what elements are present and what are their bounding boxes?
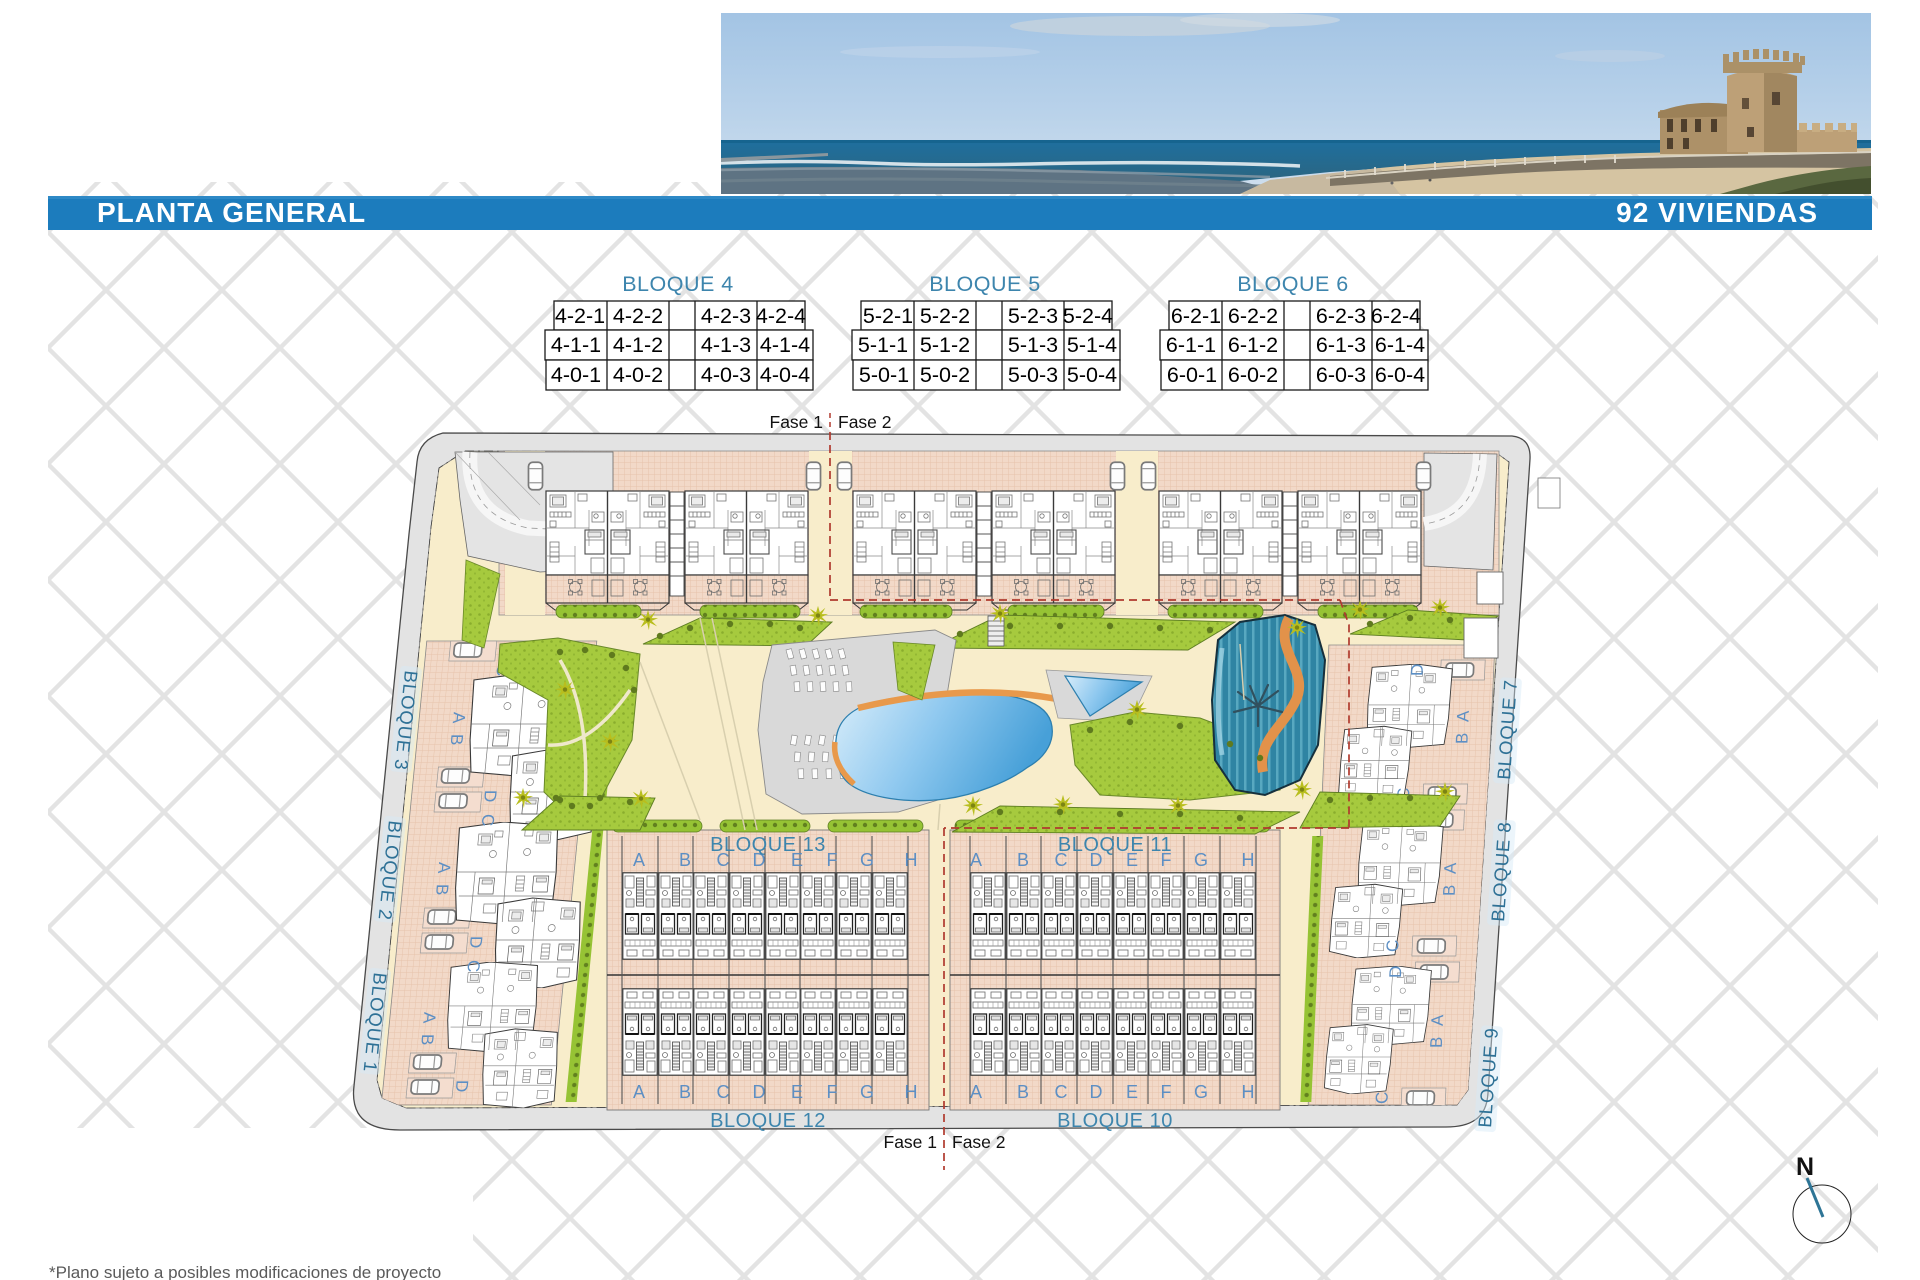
svg-text:4-1-2: 4-1-2 — [613, 333, 663, 357]
svg-text:A: A — [449, 712, 469, 724]
svg-text:BLOQUE 4: BLOQUE 4 — [622, 272, 734, 296]
svg-text:6-0-2: 6-0-2 — [1228, 363, 1278, 387]
svg-text:F: F — [827, 850, 838, 870]
svg-text:D: D — [480, 790, 500, 802]
svg-text:BLOQUE 6: BLOQUE 6 — [1237, 272, 1349, 296]
svg-text:6-0-3: 6-0-3 — [1316, 363, 1366, 387]
svg-text:N: N — [1796, 1153, 1814, 1181]
svg-text:B: B — [1017, 850, 1029, 870]
svg-text:C: C — [463, 960, 483, 972]
svg-text:6-0-4: 6-0-4 — [1375, 363, 1425, 387]
svg-text:D: D — [1090, 1082, 1103, 1102]
svg-text:5-1-1: 5-1-1 — [858, 333, 908, 357]
svg-text:6-2-2: 6-2-2 — [1228, 304, 1278, 328]
svg-text:6-0-1: 6-0-1 — [1167, 363, 1217, 387]
svg-text:C: C — [717, 1082, 730, 1102]
svg-text:BLOQUE 11: BLOQUE 11 — [1058, 834, 1172, 856]
svg-text:4-2-3: 4-2-3 — [701, 304, 751, 328]
svg-text:D: D — [1386, 966, 1406, 978]
svg-text:A: A — [434, 862, 454, 874]
svg-text:C: C — [1055, 1082, 1068, 1102]
svg-text:5-1-2: 5-1-2 — [920, 333, 970, 357]
svg-text:6-1-3: 6-1-3 — [1316, 333, 1366, 357]
svg-text:PLANTA GENERAL: PLANTA GENERAL — [97, 197, 366, 228]
svg-text:A: A — [1428, 1014, 1448, 1026]
svg-text:E: E — [791, 1082, 803, 1102]
svg-text:D: D — [452, 1080, 472, 1092]
svg-text:BLOQUE 12: BLOQUE 12 — [710, 1110, 826, 1132]
svg-text:B: B — [679, 1082, 691, 1102]
svg-text:B: B — [447, 734, 467, 745]
svg-text:D: D — [1407, 664, 1427, 676]
svg-text:B: B — [1452, 733, 1472, 744]
svg-text:D: D — [753, 1082, 766, 1102]
svg-text:6-2-3: 6-2-3 — [1316, 304, 1366, 328]
svg-text:4-1-3: 4-1-3 — [701, 333, 751, 357]
svg-text:Fase 1: Fase 1 — [770, 412, 824, 432]
svg-text:5-2-1: 5-2-1 — [863, 304, 913, 328]
svg-text:G: G — [1194, 850, 1208, 870]
svg-text:H: H — [1242, 1082, 1255, 1102]
svg-text:4-2-1: 4-2-1 — [555, 304, 605, 328]
svg-text:5-0-3: 5-0-3 — [1008, 363, 1058, 387]
svg-text:4-0-3: 4-0-3 — [701, 363, 751, 387]
svg-text:5-1-4: 5-1-4 — [1067, 333, 1117, 357]
svg-text:B: B — [1440, 885, 1460, 896]
svg-text:5-2-2: 5-2-2 — [920, 304, 970, 328]
svg-text:6-1-2: 6-1-2 — [1228, 333, 1278, 357]
svg-text:B: B — [417, 1034, 437, 1045]
svg-text:E: E — [1126, 1082, 1138, 1102]
svg-text:5-0-4: 5-0-4 — [1067, 363, 1117, 387]
svg-text:B: B — [1017, 1082, 1029, 1102]
svg-text:5-0-2: 5-0-2 — [920, 363, 970, 387]
svg-text:4-2-2: 4-2-2 — [613, 304, 663, 328]
svg-text:F: F — [827, 1082, 838, 1102]
svg-text:A: A — [633, 850, 645, 870]
svg-text:Fase 1: Fase 1 — [884, 1132, 938, 1152]
svg-text:B: B — [1427, 1037, 1447, 1048]
svg-text:BLOQUE 13: BLOQUE 13 — [710, 834, 826, 856]
svg-text:4-0-4: 4-0-4 — [760, 363, 810, 387]
svg-text:5-1-3: 5-1-3 — [1008, 333, 1058, 357]
svg-text:G: G — [1194, 1082, 1208, 1102]
svg-text:6-1-4: 6-1-4 — [1375, 333, 1425, 357]
svg-text:A: A — [970, 1082, 982, 1102]
svg-text:6-2-1: 6-2-1 — [1171, 304, 1221, 328]
svg-text:4-1-1: 4-1-1 — [551, 333, 601, 357]
svg-text:G: G — [860, 850, 874, 870]
svg-text:BLOQUE 5: BLOQUE 5 — [929, 272, 1041, 296]
svg-text:4-0-1: 4-0-1 — [551, 363, 601, 387]
svg-text:BLOQUE 10: BLOQUE 10 — [1057, 1110, 1173, 1132]
svg-text:H: H — [905, 1082, 918, 1102]
svg-text:Fase 2: Fase 2 — [838, 412, 892, 432]
svg-text:Fase 2: Fase 2 — [952, 1132, 1006, 1152]
svg-text:5-2-4: 5-2-4 — [1063, 304, 1113, 328]
svg-text:92 VIVIENDAS: 92 VIVIENDAS — [1616, 197, 1818, 228]
svg-text:4-0-2: 4-0-2 — [613, 363, 663, 387]
svg-text:A: A — [1453, 710, 1473, 722]
svg-text:A: A — [419, 1012, 439, 1024]
svg-text:C: C — [478, 814, 498, 826]
svg-text:H: H — [905, 850, 918, 870]
svg-text:A: A — [1441, 862, 1461, 874]
svg-text:6-2-4: 6-2-4 — [1371, 304, 1421, 328]
svg-text:6-1-1: 6-1-1 — [1166, 333, 1216, 357]
svg-text:4-1-4: 4-1-4 — [760, 333, 810, 357]
svg-text:*Plano sujeto a posibles modif: *Plano sujeto a posibles modificaciones … — [49, 1263, 441, 1280]
svg-text:H: H — [1242, 850, 1255, 870]
svg-text:D: D — [466, 936, 486, 948]
svg-text:B: B — [432, 884, 452, 895]
svg-text:A: A — [633, 1082, 645, 1102]
svg-text:5-0-1: 5-0-1 — [859, 363, 909, 387]
svg-text:A: A — [970, 850, 982, 870]
svg-text:B: B — [679, 850, 691, 870]
svg-text:4-2-4: 4-2-4 — [756, 304, 806, 328]
svg-text:C: C — [1383, 940, 1403, 952]
svg-text:G: G — [860, 1082, 874, 1102]
svg-text:F: F — [1161, 1082, 1172, 1102]
svg-text:C: C — [1372, 1092, 1392, 1104]
svg-text:5-2-3: 5-2-3 — [1008, 304, 1058, 328]
